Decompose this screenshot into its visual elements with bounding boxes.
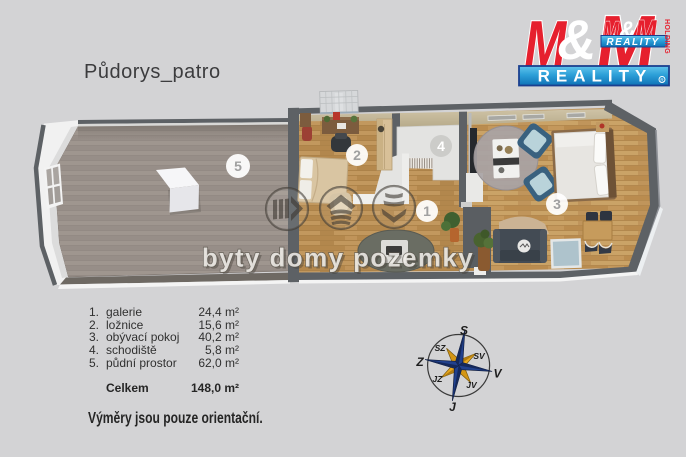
svg-text:J: J bbox=[449, 400, 456, 414]
svg-text:S: S bbox=[460, 324, 468, 338]
svg-text:SZ: SZ bbox=[435, 343, 447, 353]
svg-text:Z: Z bbox=[415, 355, 424, 369]
svg-text:4: 4 bbox=[437, 138, 445, 154]
svg-text:V: V bbox=[493, 367, 502, 381]
svg-text:5: 5 bbox=[234, 158, 242, 174]
svg-text:byty domy pozemky: byty domy pozemky bbox=[202, 243, 474, 273]
svg-text:1: 1 bbox=[423, 203, 431, 219]
svg-text:SV: SV bbox=[473, 351, 486, 361]
svg-text:JV: JV bbox=[466, 380, 478, 390]
svg-text:2: 2 bbox=[353, 147, 361, 163]
svg-text:JZ: JZ bbox=[433, 374, 444, 384]
svg-text:3: 3 bbox=[553, 196, 561, 212]
